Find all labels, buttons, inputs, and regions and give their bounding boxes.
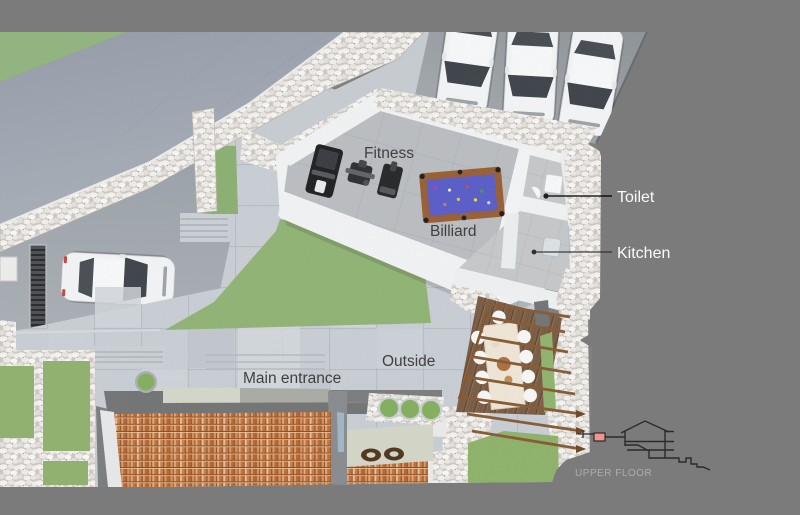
svg-text:UPPER FLOOR: UPPER FLOOR: [575, 468, 652, 479]
svg-text:Toilet: Toilet: [617, 189, 655, 206]
svg-text:Kitchen: Kitchen: [617, 245, 670, 262]
